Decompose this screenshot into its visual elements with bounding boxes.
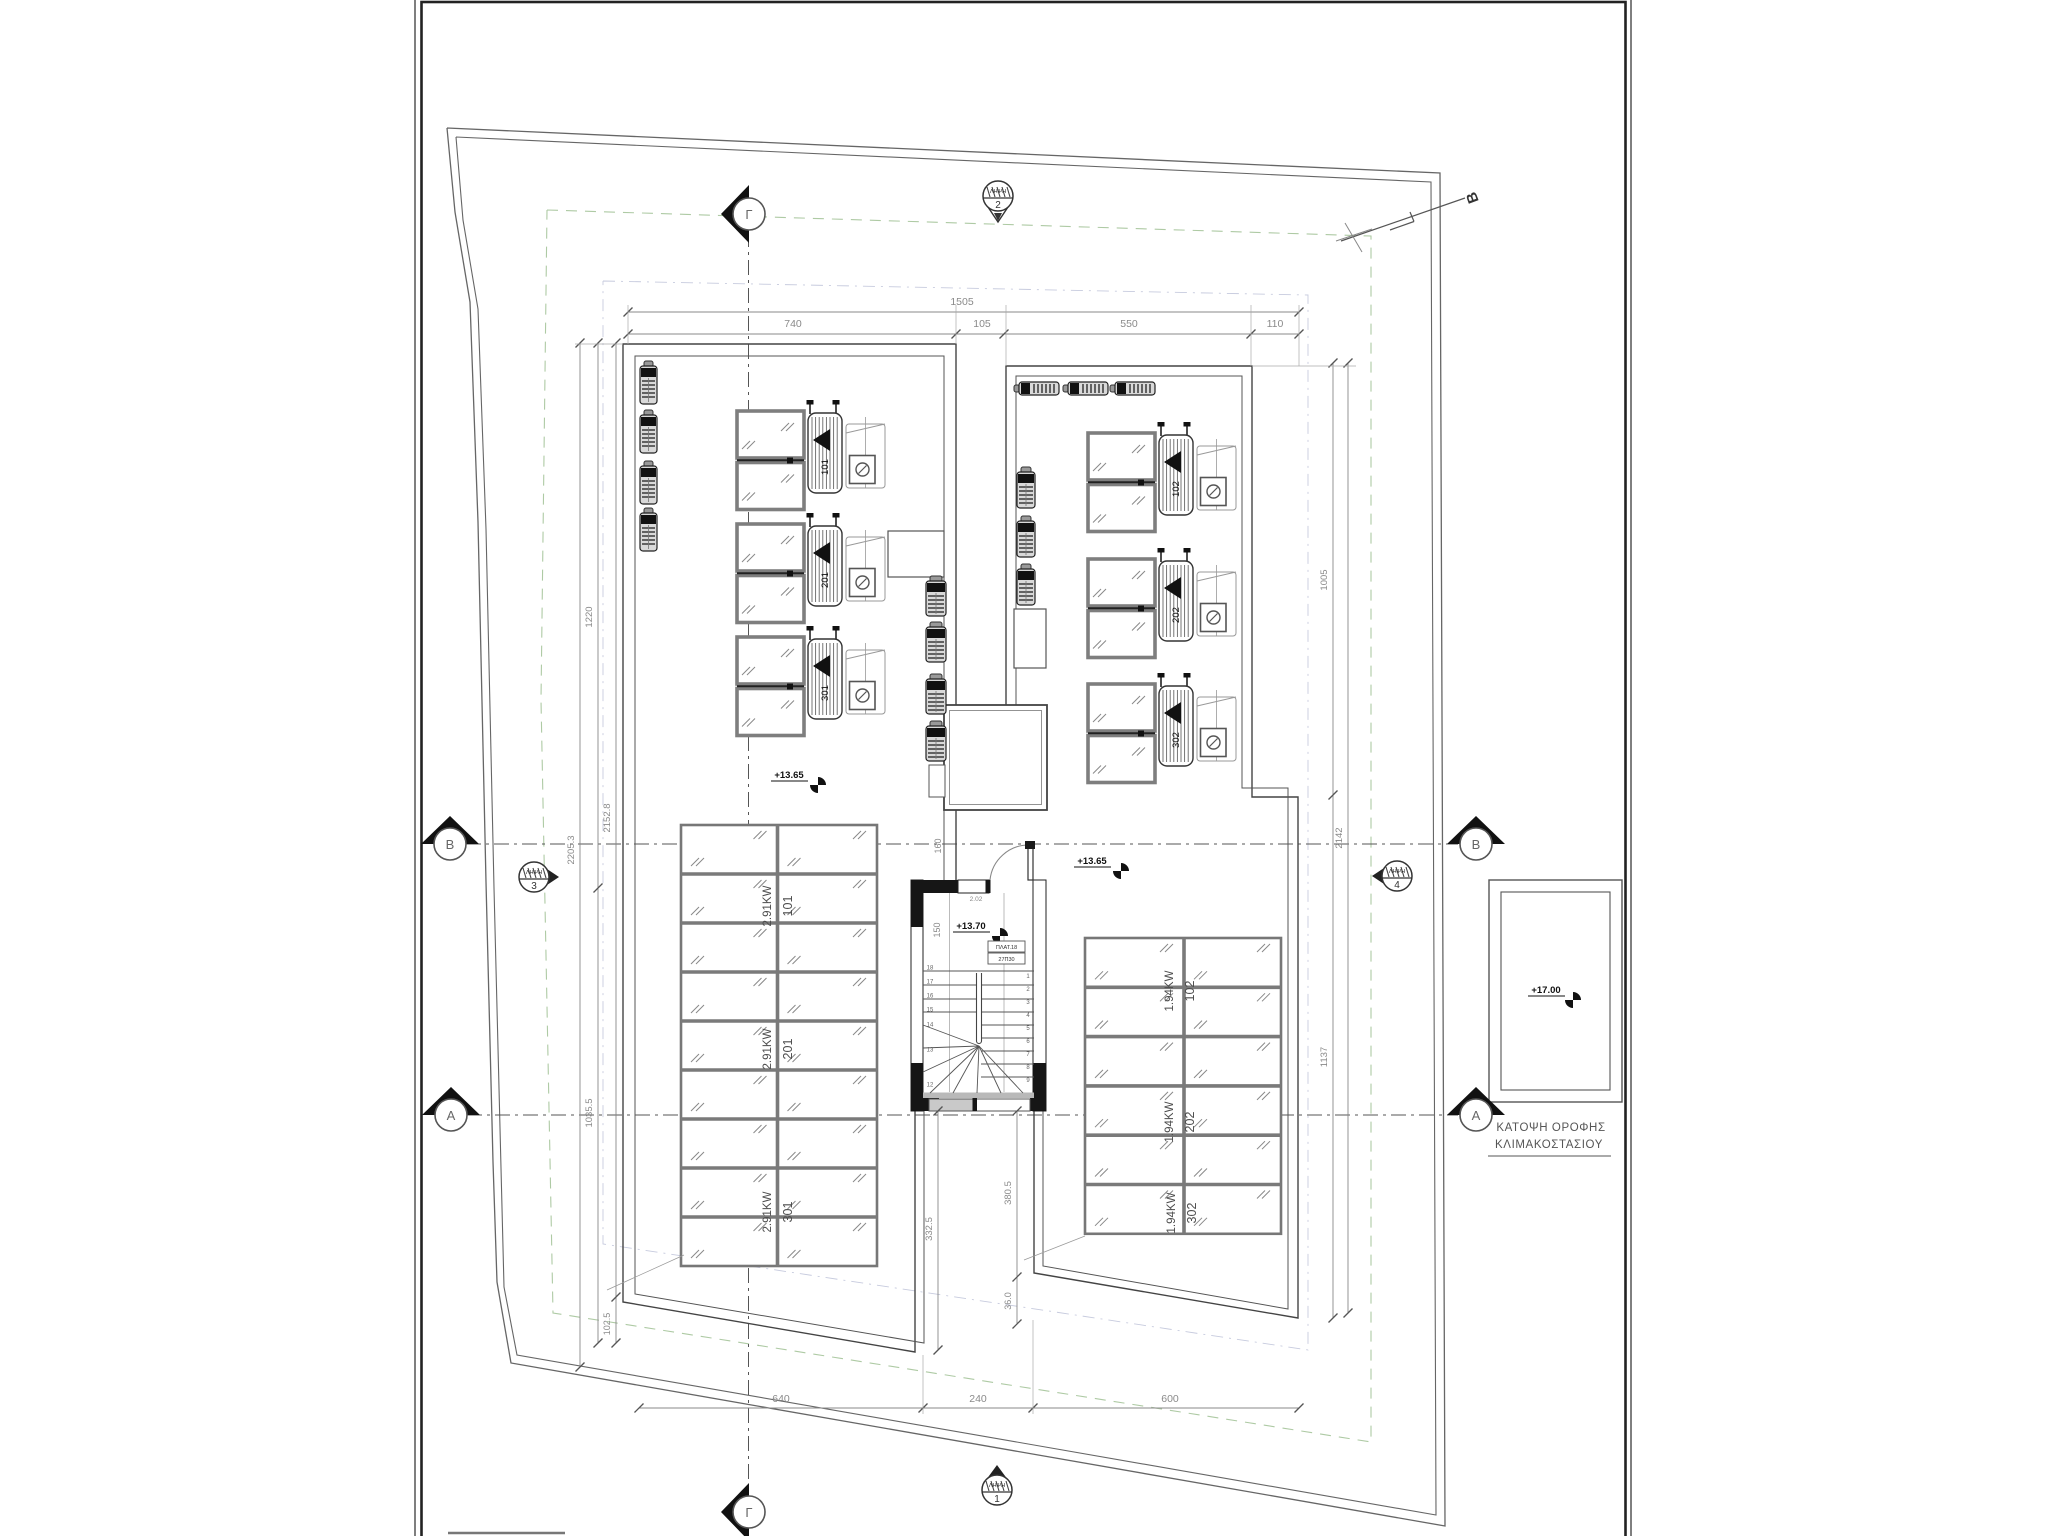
svg-text:101: 101 <box>781 896 795 917</box>
svg-text:202: 202 <box>1171 607 1182 623</box>
svg-text:ΚΛΙΜΑΚΟΣΤΑΣΙΟΥ: ΚΛΙΜΑΚΟΣΤΑΣΙΟΥ <box>1495 1139 1603 1151</box>
svg-text:B: B <box>1472 837 1481 852</box>
svg-text:+13.65: +13.65 <box>1077 856 1107 867</box>
svg-text:Γ: Γ <box>745 207 752 222</box>
svg-text:110: 110 <box>1267 318 1284 330</box>
svg-text:A: A <box>1472 1108 1481 1123</box>
svg-text:1005: 1005 <box>1319 569 1330 590</box>
svg-text:202: 202 <box>1183 1112 1197 1133</box>
svg-text:302: 302 <box>1185 1203 1199 1224</box>
svg-text:17: 17 <box>927 980 934 986</box>
svg-text:380.5: 380.5 <box>1003 1181 1014 1205</box>
svg-text:ΚΑΤΟΨΗ ΟΡΟΦΗΣ: ΚΑΤΟΨΗ ΟΡΟΦΗΣ <box>1496 1122 1605 1134</box>
svg-text:15: 15 <box>927 1008 934 1014</box>
svg-text:1.94KW: 1.94KW <box>1164 970 1176 1011</box>
svg-text:4: 4 <box>1394 880 1400 891</box>
svg-text:2.02: 2.02 <box>970 896 983 903</box>
svg-text:102: 102 <box>1183 981 1197 1002</box>
svg-text:2.91KW: 2.91KW <box>762 1191 774 1232</box>
svg-text:16: 16 <box>927 994 934 1000</box>
svg-text:2: 2 <box>995 200 1001 211</box>
svg-text:332.5: 332.5 <box>924 1217 935 1241</box>
svg-text:150: 150 <box>932 922 942 937</box>
svg-text:12: 12 <box>927 1083 934 1089</box>
svg-text:B: B <box>446 837 455 852</box>
svg-text:240: 240 <box>969 1393 987 1405</box>
svg-text:1137: 1137 <box>1319 1047 1330 1067</box>
svg-text:201: 201 <box>781 1039 795 1060</box>
svg-text:+13.70: +13.70 <box>956 921 985 932</box>
svg-text:A: A <box>447 1108 456 1123</box>
svg-text:1505: 1505 <box>950 296 974 308</box>
svg-text:3: 3 <box>531 881 537 892</box>
svg-text:550: 550 <box>1120 318 1138 330</box>
svg-text:36.0: 36.0 <box>1003 1292 1013 1310</box>
svg-text:302: 302 <box>1171 732 1182 748</box>
svg-text:14: 14 <box>927 1023 934 1029</box>
svg-text:2.91KW: 2.91KW <box>762 885 774 926</box>
svg-text:1.94KW: 1.94KW <box>1166 1192 1178 1233</box>
svg-text:18: 18 <box>927 966 934 972</box>
svg-text:ΛΗΨΗ: ΛΗΨΗ <box>989 1483 1005 1489</box>
svg-text:ΠΛΑΤ.18: ΠΛΑΤ.18 <box>996 945 1017 951</box>
svg-text:160: 160 <box>933 838 943 853</box>
svg-text:27Π30: 27Π30 <box>998 957 1014 963</box>
svg-text:2142: 2142 <box>1334 827 1345 848</box>
svg-text:101: 101 <box>820 459 831 475</box>
svg-text:301: 301 <box>781 1202 795 1223</box>
svg-text:Γ: Γ <box>745 1505 752 1520</box>
svg-text:301: 301 <box>820 685 831 701</box>
svg-text:ΛΗΨΗ: ΛΗΨΗ <box>990 189 1006 195</box>
svg-text:1.94KW: 1.94KW <box>1164 1101 1176 1142</box>
svg-text:102: 102 <box>1171 481 1182 497</box>
svg-text:740: 740 <box>784 318 802 330</box>
svg-text:+17.00: +17.00 <box>1531 985 1560 996</box>
svg-text:1: 1 <box>994 1494 1000 1505</box>
svg-text:105: 105 <box>973 318 991 330</box>
svg-text:2.91KW: 2.91KW <box>762 1028 774 1069</box>
svg-text:102.5: 102.5 <box>602 1313 612 1336</box>
svg-text:ΛΗΨΗ: ΛΗΨΗ <box>1389 869 1405 875</box>
svg-text:640: 640 <box>772 1393 790 1405</box>
svg-text:2205.3: 2205.3 <box>566 835 577 864</box>
svg-text:ΛΗΨΗ: ΛΗΨΗ <box>526 870 542 876</box>
svg-text:201: 201 <box>820 572 831 588</box>
svg-text:1035.5: 1035.5 <box>584 1098 595 1127</box>
svg-text:13: 13 <box>927 1048 934 1054</box>
svg-text:+13.65: +13.65 <box>774 770 804 781</box>
svg-text:1220: 1220 <box>584 606 595 627</box>
svg-text:600: 600 <box>1161 1393 1179 1405</box>
svg-text:2152.8: 2152.8 <box>602 803 613 832</box>
